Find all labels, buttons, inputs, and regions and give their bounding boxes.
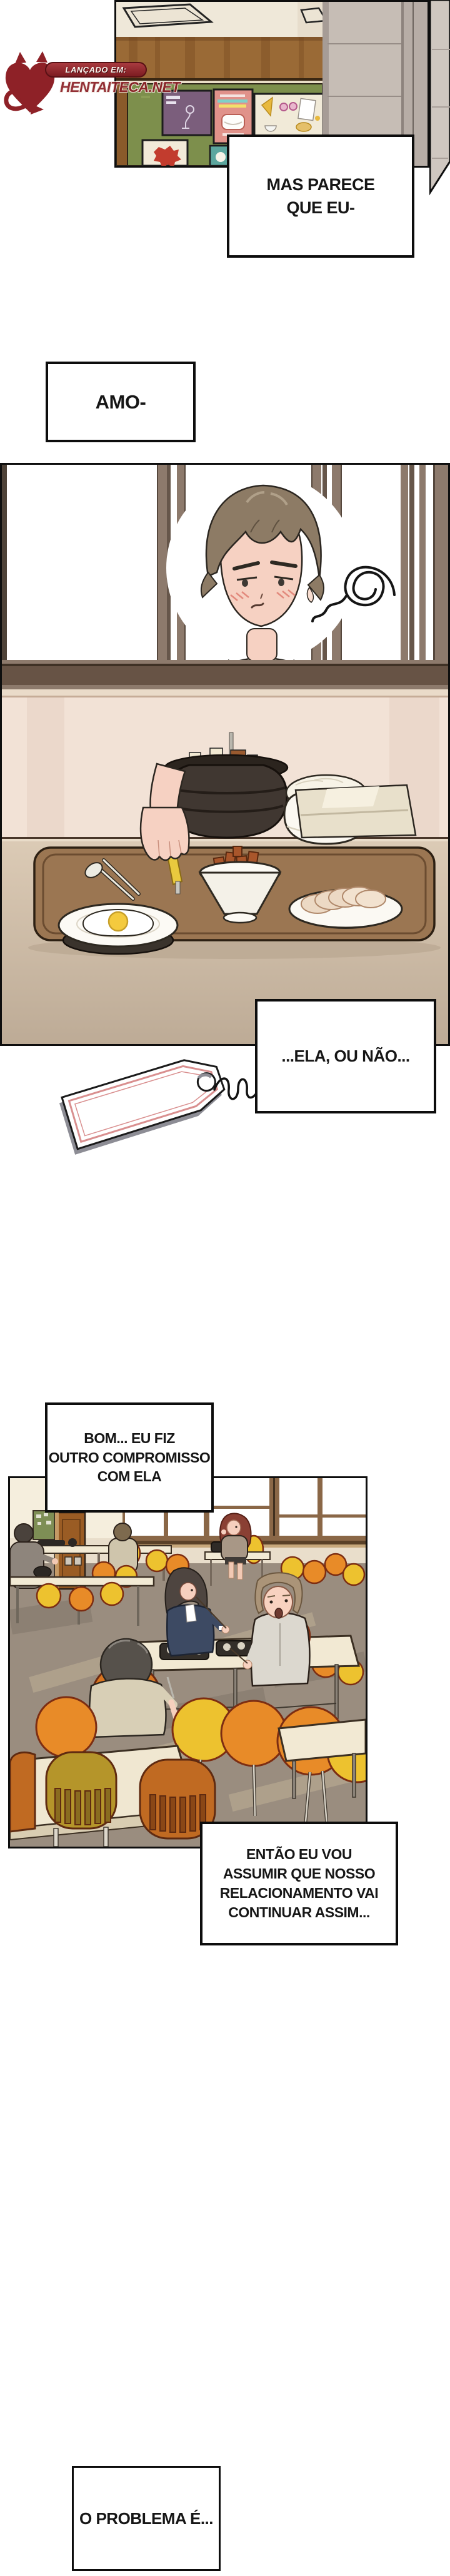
watermark-label: LANÇADO EM: <box>66 65 127 74</box>
cafeteria-scene <box>10 1478 366 1847</box>
window-sill <box>2 660 448 697</box>
egg-plate <box>59 904 177 954</box>
panel-cafeteria <box>8 1476 367 1848</box>
egg-yolk <box>109 912 127 931</box>
speech-line: COM ELA <box>97 1467 162 1486</box>
comic-page: 창업 동아리 모집 <box>0 0 450 2576</box>
boy-sleeve <box>296 785 416 838</box>
devil-heart-icon <box>1 49 59 116</box>
speech-line: ...ELA, OU NÃO... <box>281 1045 409 1067</box>
speech-line: BOM... EU FIZ <box>84 1429 175 1448</box>
slat-chair-left-partial <box>10 1752 35 1832</box>
name-tag <box>37 1051 262 1182</box>
speech-line: RELACIONAMENTO VAI <box>220 1884 378 1903</box>
speech-line: AMO- <box>96 389 146 415</box>
panel-hallway-sliver <box>429 0 450 199</box>
speech-box-4: BOM... EU FIZ OUTRO COMPROMISSO COM ELA <box>45 1402 214 1513</box>
speech-box-3: ...ELA, OU NÃO... <box>255 999 436 1113</box>
speech-line: CONTINUAR ASSIM... <box>228 1903 370 1922</box>
watermark-logo: LANÇADO EM: HENTAITECA.NET <box>0 44 187 119</box>
speech-line: ENTÃO EU VOU <box>246 1845 352 1864</box>
eating-scene <box>2 465 448 1044</box>
watermark-banner: LANÇADO EM: <box>45 62 147 78</box>
speech-line: OUTRO COMPROMISSO <box>49 1448 211 1468</box>
poster-splat <box>142 140 187 166</box>
speech-line: MAS PARECE <box>266 173 374 196</box>
speech-line: QUE EU- <box>286 196 354 219</box>
speech-line: ASSUMIR QUE NOSSO <box>223 1864 375 1884</box>
speech-box-2: AMO- <box>46 362 196 442</box>
panel-eating <box>0 463 450 1046</box>
watermark-site: HENTAITECA.NET <box>60 79 197 96</box>
speech-box-6: O PROBLEMA É... <box>72 2466 221 2571</box>
speech-box-5: ENTÃO EU VOU ASSUMIR QUE NOSSO RELACIONA… <box>200 1822 398 1945</box>
speech-line: O PROBLEMA É... <box>79 2508 213 2530</box>
speech-box-1: MAS PARECE QUE EU- <box>227 134 414 258</box>
